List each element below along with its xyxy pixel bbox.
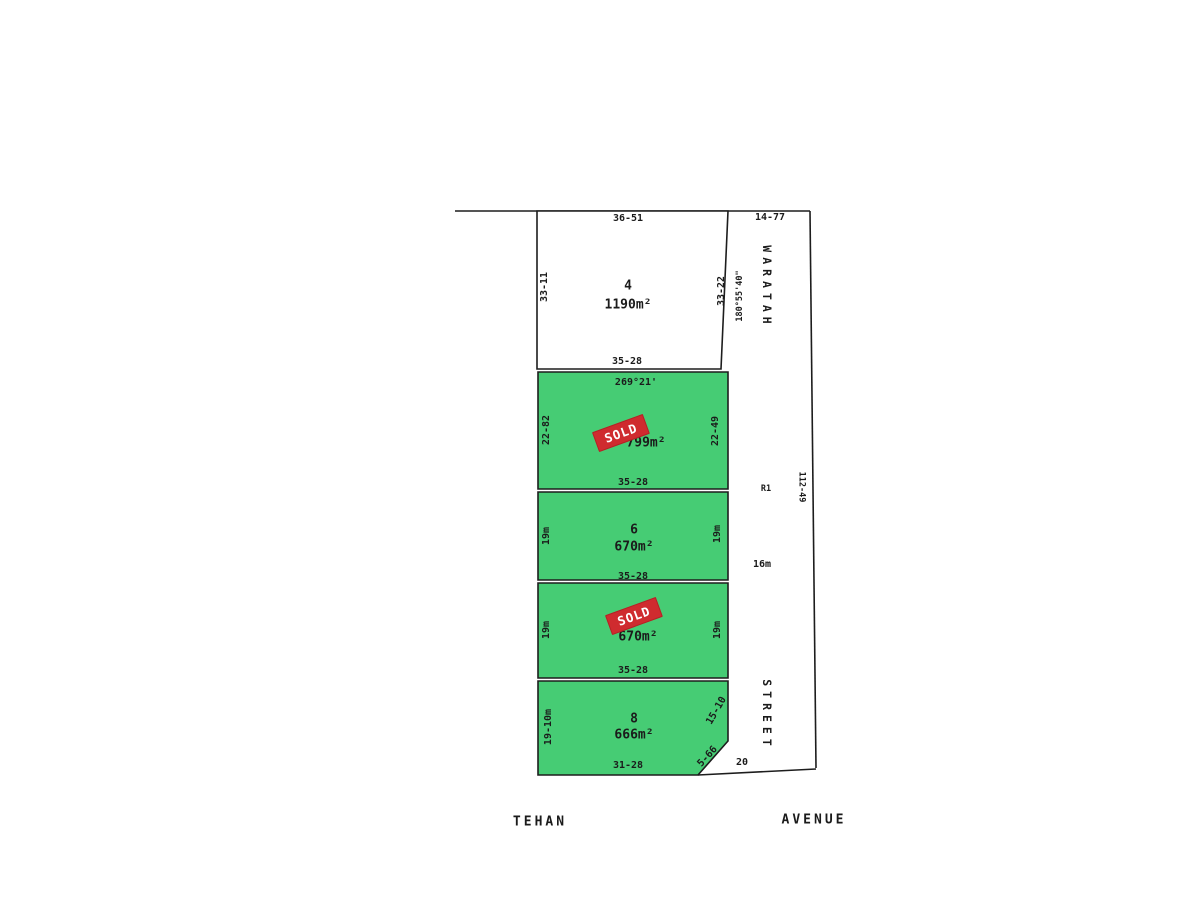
lot-7-right-dimension: 19m xyxy=(713,621,723,639)
lot-4-area: 1190m² xyxy=(605,299,652,312)
street-name-avenue: AVENUE xyxy=(782,814,847,827)
avenue-width: 20 xyxy=(736,758,748,768)
waratah-street-east-boundary xyxy=(810,211,816,768)
lot-6-bottom-dimension: 35-28 xyxy=(618,572,648,582)
lot-4-parcel xyxy=(537,211,728,369)
street-length-dimension: 112-49 xyxy=(797,472,806,503)
lot-7-left-dimension: 19m xyxy=(542,621,552,639)
lot-4-bottom-dimension: 35-28 xyxy=(612,357,642,367)
lot-7-bottom-dimension: 35-28 xyxy=(618,666,648,676)
lot-8-area: 666m² xyxy=(614,729,653,742)
lot-6-left-dimension: 19m xyxy=(542,527,552,545)
lot-5-bottom-dimension: 35-28 xyxy=(618,478,648,488)
lot-8-number: 8 xyxy=(630,713,638,726)
lot-7-area: 670m² xyxy=(618,631,657,644)
lot-6-area: 670m² xyxy=(614,541,653,554)
street-name-street: STREET xyxy=(760,679,772,751)
street-carriage-width: 16m xyxy=(753,560,771,570)
street-name-waratah: WARATAH xyxy=(760,245,772,328)
lot-4-right-dimension: 33-22 xyxy=(717,276,727,306)
tehan-avenue-boundary xyxy=(698,769,816,775)
subdivision-plan: 36-51 33-11 4 1190m² 33-22 180°55'40" 35… xyxy=(0,0,1200,900)
lot-5-bearing: 269°21' xyxy=(615,378,657,388)
lot-6-right-dimension: 19m xyxy=(713,525,723,543)
lot-6-number: 6 xyxy=(630,524,638,537)
street-reserve-label: R1 xyxy=(761,485,771,494)
lot-4-left-dimension: 33-11 xyxy=(540,272,550,302)
lot-8-bottom-dimension: 31-28 xyxy=(613,761,643,771)
lot-8-left-dimension: 19-10m xyxy=(544,709,554,745)
lot-5-right-dimension: 22-49 xyxy=(711,416,721,446)
lot-5-left-dimension: 22-82 xyxy=(542,415,552,445)
lot-4-top-dimension: 36-51 xyxy=(613,214,643,224)
street-name-tehan: TEHAN xyxy=(513,816,567,829)
street-top-width: 14-77 xyxy=(755,213,785,223)
lot-4-boundary-bearing: 180°55'40" xyxy=(736,270,745,321)
lot-4-number: 4 xyxy=(624,280,632,293)
